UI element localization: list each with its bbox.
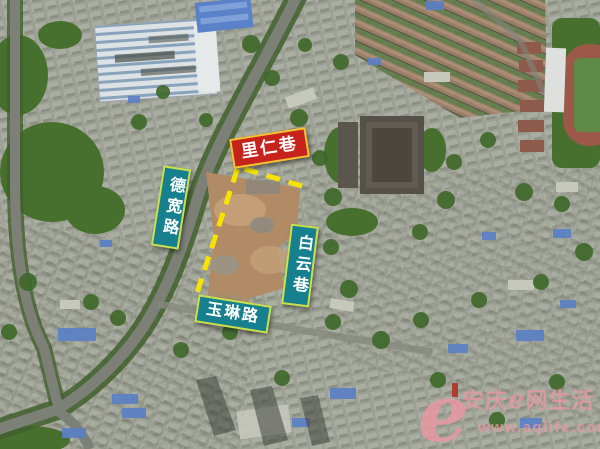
blue-roof-building bbox=[195, 0, 254, 33]
satellite-map-image: 里仁巷 德宽路 白云巷 玉琳路 e 安庆e网生活 www.aqlife.com bbox=[0, 0, 600, 449]
small-red-roof bbox=[452, 383, 458, 397]
dark-compound bbox=[338, 116, 424, 194]
